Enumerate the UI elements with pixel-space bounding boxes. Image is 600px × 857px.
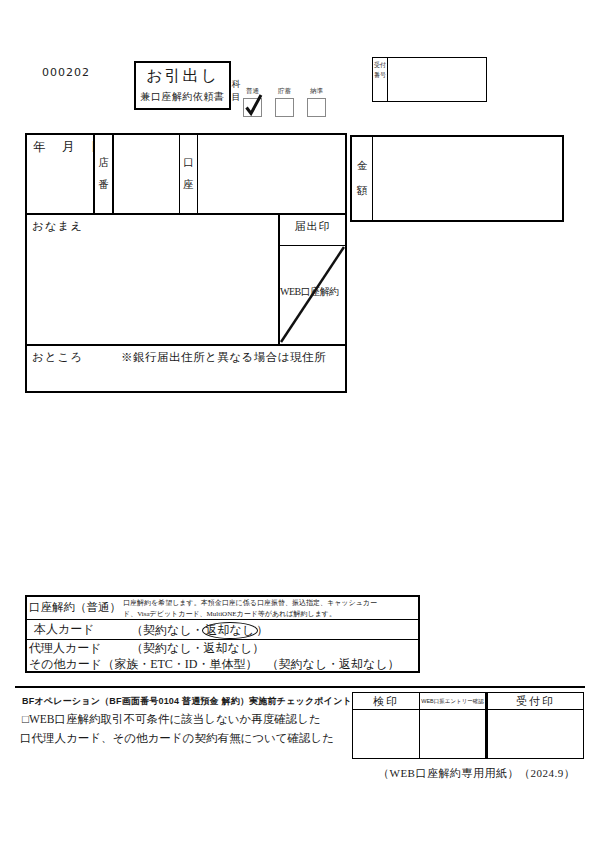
checkbox-label-chochiku: 貯蓄 xyxy=(275,87,294,96)
cancel-description: 口座解約を希望します。本預金口座に係る口座振替、振込指定、キャッシュカー ド、V… xyxy=(123,597,418,619)
card-row-sonota: その他カード（家族・ETC・ID・単体型）（契約なし・返却なし） xyxy=(27,656,418,673)
cancel-title: 口座解約（普通） xyxy=(27,597,123,619)
checkbox-futsu[interactable] xyxy=(243,98,262,117)
cancel-header-row: 口座解約（普通） 口座解約を希望します。本預金口座に係る口座振替、振込指定、キャ… xyxy=(27,597,418,620)
card-label-honnin: 本人カード xyxy=(34,622,95,636)
branch-number-label-cell: 店番 xyxy=(93,135,114,213)
stamp-table: 検印 WEB口振エントリー確認 受付印 xyxy=(352,692,584,759)
name-field[interactable] xyxy=(27,215,277,343)
seal-label: 届出印 xyxy=(280,215,345,246)
reception-number-label: 受付番号 xyxy=(373,58,388,101)
account-label: 口座 xyxy=(183,152,194,196)
card-options-sonota: （契約なし・返却なし） xyxy=(266,657,399,671)
amount-label: 金額 xyxy=(356,154,368,202)
checkbox-nojun[interactable] xyxy=(307,98,326,117)
subject-label: 科目 xyxy=(231,78,241,104)
card-row-dairinin: 代理人カード （契約なし・返却なし） xyxy=(27,640,418,656)
check-mark-icon xyxy=(244,99,261,116)
title-box: お引出し 兼口座解約依頼書 xyxy=(134,61,231,110)
option-prefix: （契約なし・ xyxy=(131,623,204,637)
stamp-col-web-entry: WEB口振エントリー確認 xyxy=(420,693,485,709)
stamp-cell-kenin[interactable] xyxy=(353,710,419,757)
reception-number-field[interactable] xyxy=(388,58,486,101)
circled-option: 返却なし xyxy=(202,622,259,639)
checkbox-label-futsu: 普通 xyxy=(243,87,262,96)
checkbox-label-nojun: 納準 xyxy=(307,87,326,96)
card-label-dairinin: 代理人カード xyxy=(29,641,102,655)
address-field[interactable] xyxy=(27,363,345,391)
date-field[interactable] xyxy=(27,135,93,213)
card-label-sonota: その他カード（家族・ETC・ID・単体型） xyxy=(29,657,257,671)
form-code: 000202 xyxy=(42,66,90,79)
stamp-cell-uketsukein[interactable] xyxy=(488,710,583,757)
bf-check-item-2[interactable]: 口代理人カード、その他カードの契約有無について確認した xyxy=(20,731,334,746)
stamp-col-kenin: 検印 xyxy=(353,693,419,709)
card-row-sonota-text: その他カード（家族・ETC・ID・単体型）（契約なし・返却なし） xyxy=(29,657,400,671)
stamp-cell-web-entry[interactable] xyxy=(420,710,485,757)
subject-options: 普通 貯蓄 納準 xyxy=(243,87,353,121)
card-options-dairinin: （契約なし・返却なし） xyxy=(131,641,264,655)
form-subtitle: 兼口座解約依頼書 xyxy=(136,90,229,104)
reception-number-box: 受付番号 xyxy=(372,57,487,102)
form-title: お引出し xyxy=(136,66,229,87)
row-divider xyxy=(27,344,345,346)
web-cancel-cell[interactable]: WEB口座解約 xyxy=(280,246,345,343)
bf-check-item-1[interactable]: □WEB口座解約取引不可条件に該当しないか再度確認した xyxy=(22,712,321,727)
cancel-description-line1: 口座解約を希望します。本預金口座に係る口座振替、振込指定、キャッシュカー xyxy=(123,598,418,609)
seal-section: 届出印 WEB口座解約 xyxy=(278,215,345,344)
web-cancel-label: WEB口座解約 xyxy=(280,285,339,299)
cancel-section-box: 口座解約（普通） 口座解約を希望します。本預金口座に係る口座振替、振込指定、キャ… xyxy=(25,595,420,673)
subject-option-chochiku: 貯蓄 xyxy=(275,87,294,117)
footer-note: （WEB口座解約専用用紙）（2024.9） xyxy=(378,766,575,781)
stamp-col-uketsukein: 受付印 xyxy=(488,693,583,709)
amount-box: 金額 xyxy=(350,135,564,222)
cancel-description-line2: ド、Visaデビットカード、MultiONEカード等があれば解約します。 xyxy=(123,609,418,620)
section-divider xyxy=(15,686,585,688)
card-row-honnin: 本人カード （契約なし・返却なし） xyxy=(27,620,418,640)
card-options-honnin: （契約なし・返却なし） xyxy=(131,622,268,639)
branch-label: 店番 xyxy=(98,152,109,196)
account-number-label-cell: 口座 xyxy=(179,135,198,213)
amount-field[interactable] xyxy=(373,137,562,220)
subject-option-futsu: 普通 xyxy=(243,87,262,117)
option-suffix: ） xyxy=(256,623,268,637)
withdrawal-cancellation-form: 000202 お引出し 兼口座解約依頼書 科目 普通 貯蓄 納準 受付番号 年 … xyxy=(0,0,600,857)
bf-checkpoint-title: BFオペレーション（BF画面番号0104 普通預金 解約）実施前チェックポイント xyxy=(22,695,352,708)
main-form-box: 年 月 日 店番 口座 おなまえ 届出印 WEB口座解約 おところ ※銀行届出住… xyxy=(25,133,347,393)
amount-label-cell: 金額 xyxy=(352,137,373,220)
subject-option-nojun: 納準 xyxy=(307,87,326,117)
checkbox-chochiku[interactable] xyxy=(275,98,294,117)
branch-number-field[interactable] xyxy=(115,135,179,213)
account-number-field[interactable] xyxy=(199,135,345,213)
